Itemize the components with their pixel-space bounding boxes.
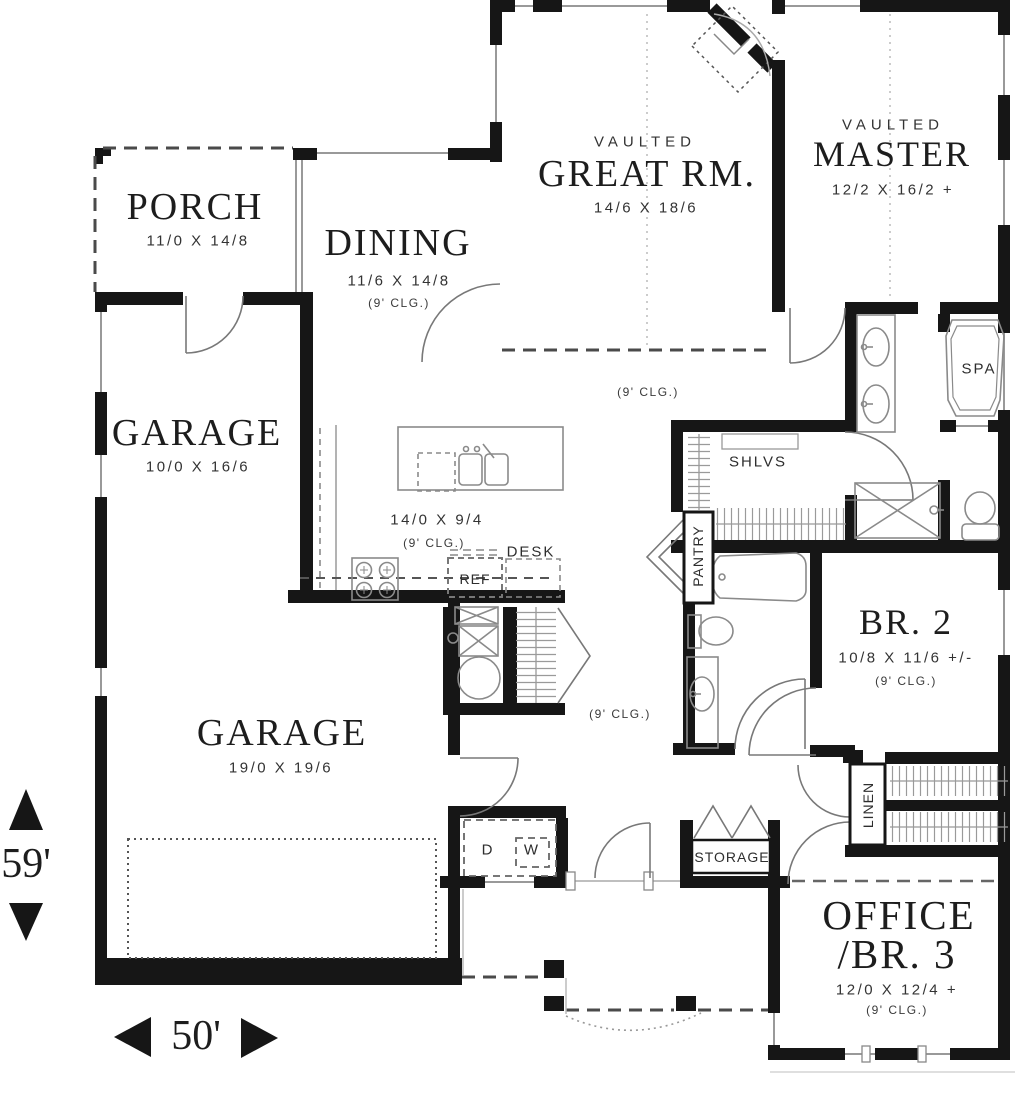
garage-upper-dims: 10/0 X 16/6 xyxy=(146,459,250,476)
hall-ceiling-note: (9' CLG.) xyxy=(589,707,651,721)
shelf xyxy=(722,434,798,449)
master-toilet-base xyxy=(962,524,999,540)
bathtub xyxy=(712,553,806,601)
master-name: MASTER xyxy=(813,133,971,175)
dryer-label: D xyxy=(482,842,495,859)
fireplace xyxy=(692,6,778,92)
dryer-box xyxy=(464,820,556,876)
garage-lower-name: GARAGE xyxy=(197,711,367,755)
pantry-label: PANTRY xyxy=(690,525,706,587)
dishwasher xyxy=(418,453,455,491)
storage-label: STORAGE xyxy=(694,849,769,865)
utility-basin xyxy=(458,657,500,699)
master-toilet-bowl xyxy=(965,492,995,524)
dining-name: DINING xyxy=(324,221,471,265)
kitchen-dims: 14/0 X 9/4 xyxy=(390,512,483,529)
greatrm-vaulted: VAULTED xyxy=(594,134,696,151)
dining-dims: 11/6 X 14/8 xyxy=(347,273,450,290)
floor-plan: PORCH 11/0 X 14/8 DINING 11/6 X 14/8 (9'… xyxy=(0,0,1024,1095)
br2-name: BR. 2 xyxy=(859,601,953,643)
master-vaulted: VAULTED xyxy=(842,117,944,134)
office-dims: 12/0 X 12/4 + xyxy=(836,982,958,999)
sink-basin-left xyxy=(459,454,482,485)
br2-dims: 10/8 X 11/6 +/- xyxy=(838,650,973,667)
master-dims: 12/2 X 16/2 + xyxy=(832,182,954,199)
arrow-left xyxy=(114,1017,151,1057)
refrigerator-label: REF xyxy=(460,571,491,587)
kitchen-ceiling-note: (9' CLG.) xyxy=(403,536,465,550)
garage-upper-name: GARAGE xyxy=(112,411,282,455)
arrow-down xyxy=(9,903,43,941)
office-ceiling-note: (9' CLG.) xyxy=(866,1003,928,1017)
kitchen-island xyxy=(398,427,563,490)
dining-ceiling-note: (9' CLG.) xyxy=(368,296,430,310)
spa-label: SPA xyxy=(962,361,997,378)
toilet-bowl xyxy=(699,617,733,645)
doors xyxy=(186,284,913,884)
porch-name: PORCH xyxy=(127,185,264,229)
linen-label: LINEN xyxy=(860,782,876,828)
master-bath-fixtures xyxy=(855,315,1004,540)
greatrm-name: GREAT RM. xyxy=(538,152,756,196)
porch-dims: 11/0 X 14/8 xyxy=(146,233,249,250)
garage-door xyxy=(128,839,436,958)
shelves-label: SHLVS xyxy=(729,454,787,471)
office-name-line2: /BR. 3 xyxy=(837,930,956,978)
br2-ceiling-note: (9' CLG.) xyxy=(875,674,937,688)
washer-label: W xyxy=(524,842,540,859)
dimension-arrows xyxy=(9,789,278,1058)
overall-width-dimension: 50' xyxy=(171,1012,221,1060)
desk-label: DESK xyxy=(507,544,556,561)
greatrm-dims: 14/6 X 18/6 xyxy=(594,200,698,217)
double-vanity xyxy=(857,315,895,432)
greatrm-ceiling-note: (9' CLG.) xyxy=(617,385,679,399)
arrow-right xyxy=(241,1018,278,1058)
garage-lower-dims: 19/0 X 19/6 xyxy=(229,760,333,777)
sink-basin-right xyxy=(485,454,508,485)
arrow-up xyxy=(9,789,43,830)
overall-depth-dimension: 59' xyxy=(1,840,51,888)
